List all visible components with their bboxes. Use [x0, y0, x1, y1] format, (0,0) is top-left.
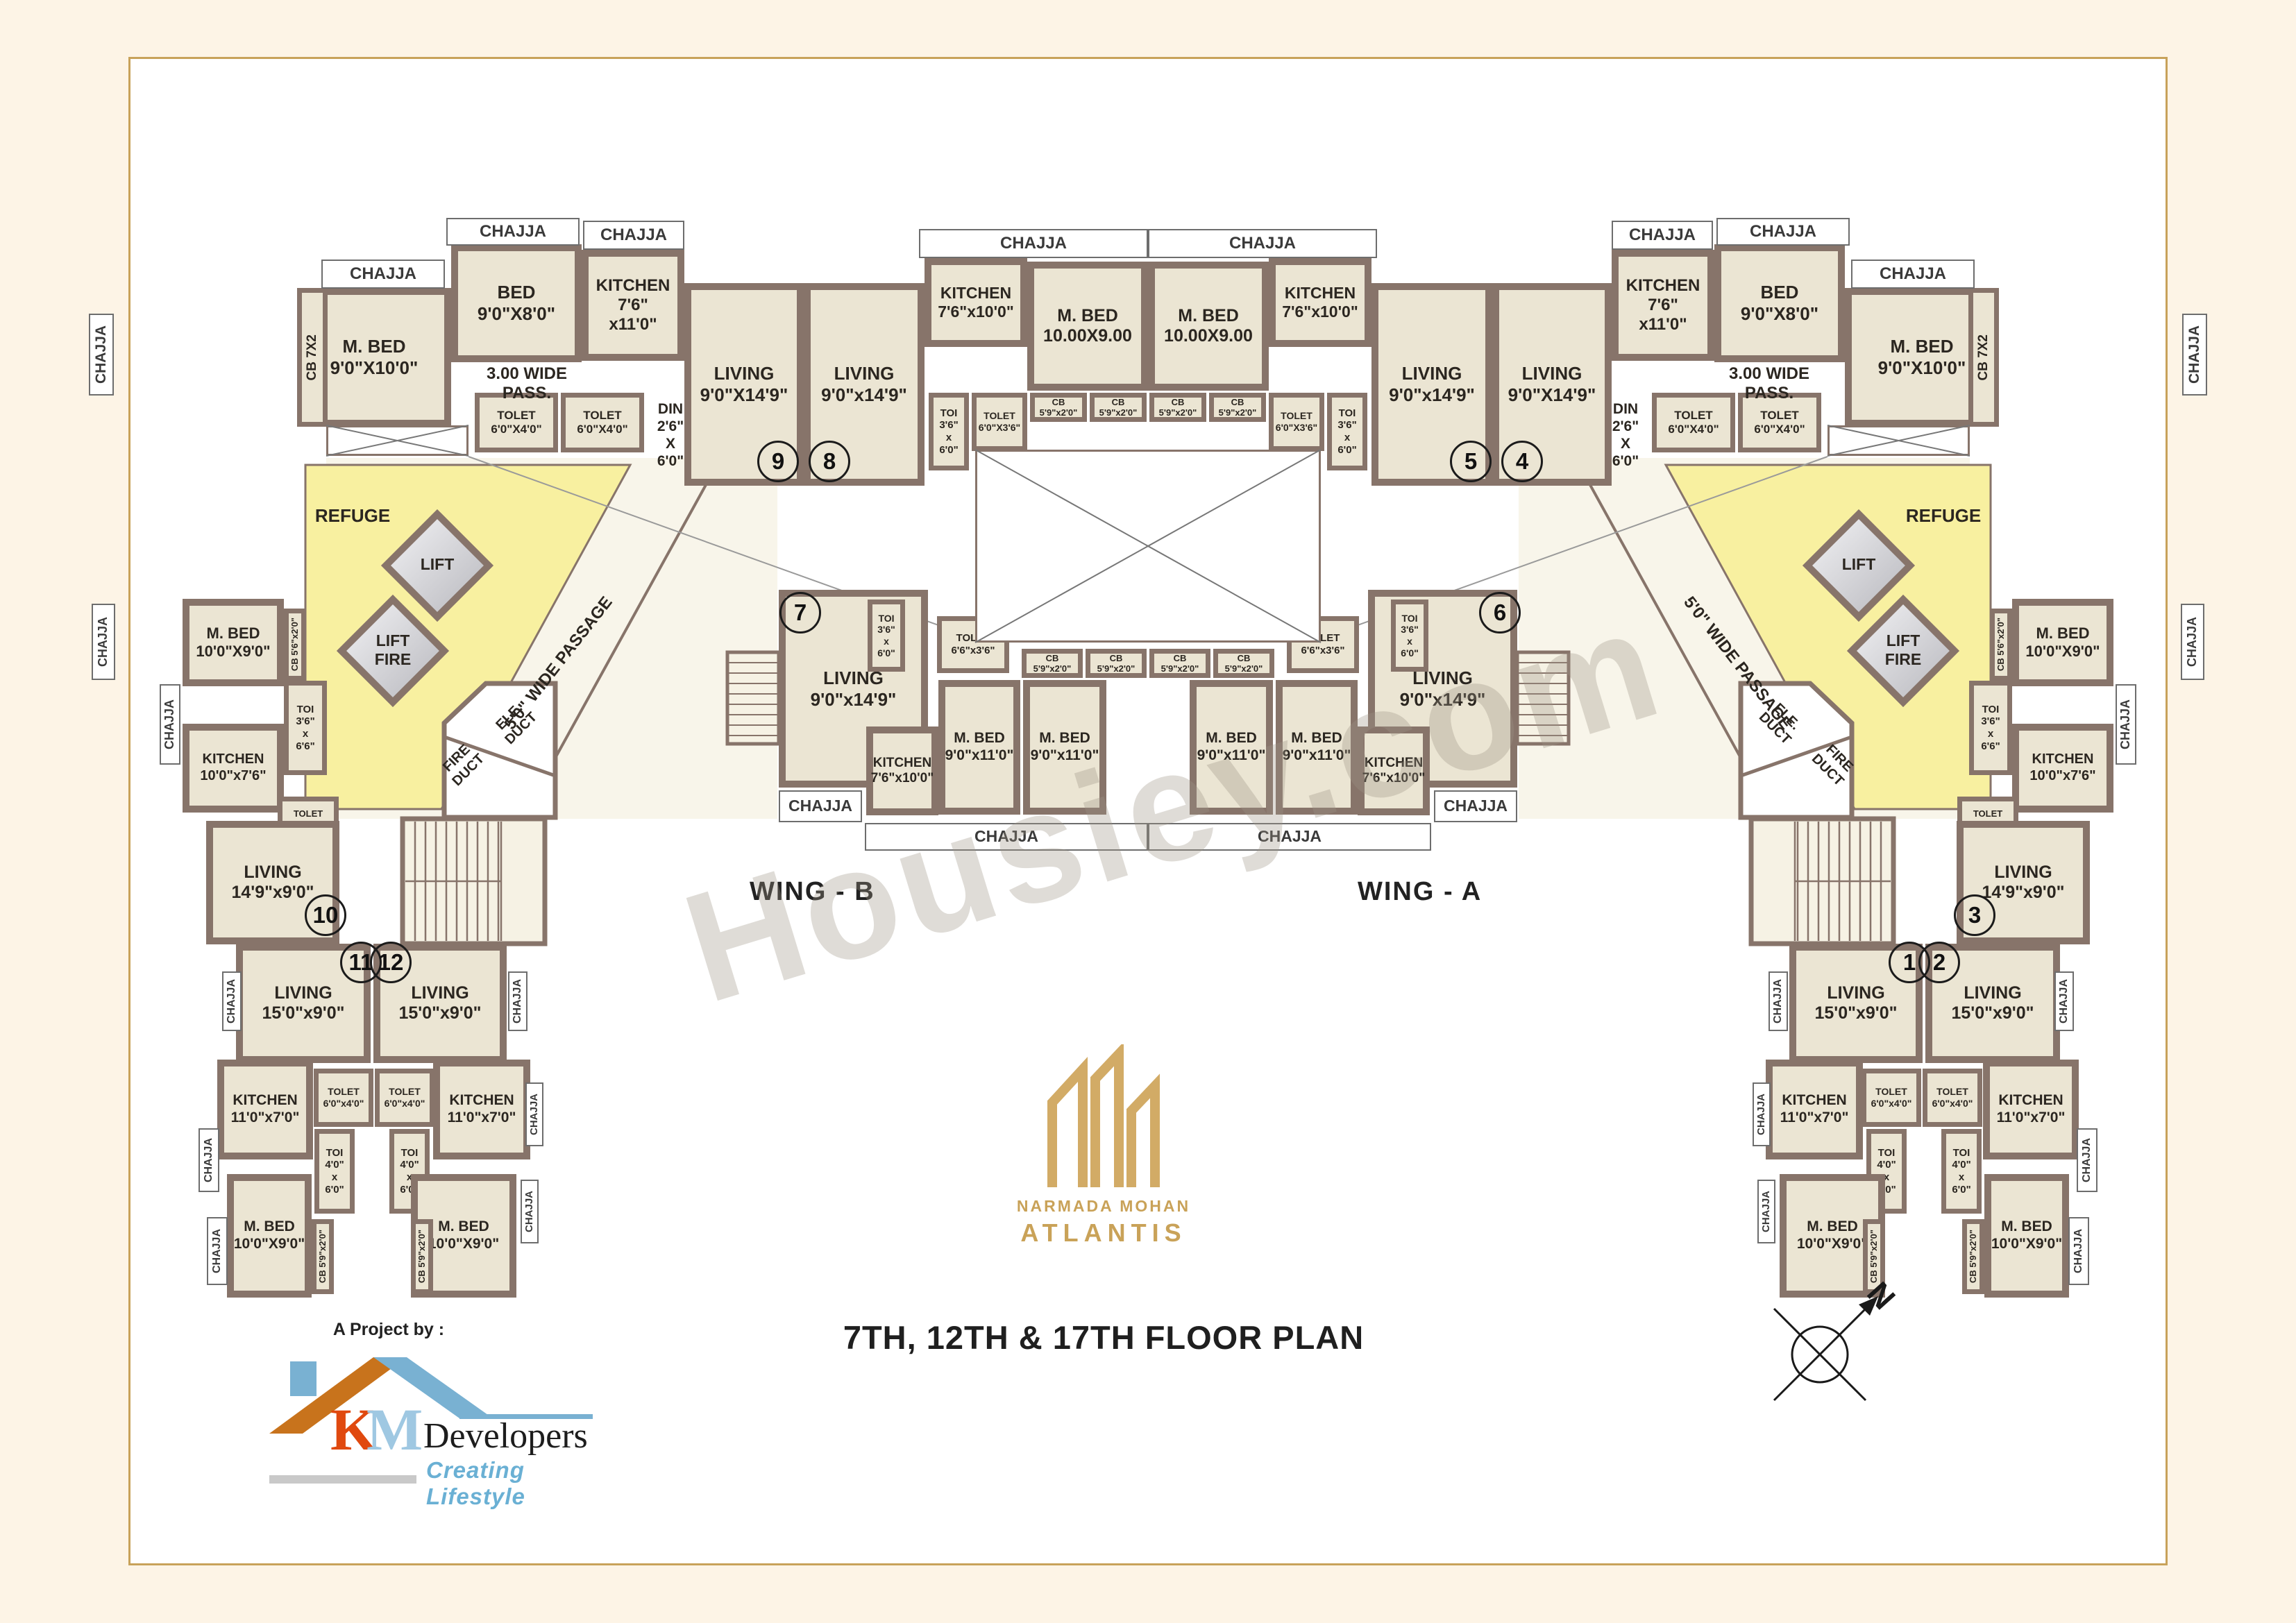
lift-label: LIFT: [411, 554, 464, 576]
unit-number-1: 1: [1889, 942, 1930, 983]
unit-number-5: 5: [1450, 441, 1492, 482]
plan-title: 7TH, 12TH & 17TH FLOOR PLAN: [812, 1318, 1395, 1357]
lift-fire-label: LIFTFIRE: [358, 629, 428, 672]
unit-number-4: 4: [1501, 441, 1543, 482]
north-arrow: [1774, 1296, 1878, 1400]
brand-subname: ATLANTIS: [999, 1218, 1208, 1248]
din-text: DIN2'6"X6'0": [650, 393, 691, 479]
stair-flight-right: [1517, 652, 1569, 744]
project-by-label: A Project by :: [312, 1320, 465, 1340]
lift-label-mirror: LIFT: [1832, 554, 1885, 576]
staircase-wing-b: [403, 819, 545, 944]
unit-number-12: 12: [370, 942, 412, 983]
void-x-lines: [326, 425, 1970, 643]
pass-text: 3.00 WIDE PASS.: [461, 373, 593, 394]
wing-b-label: WING - B: [750, 877, 875, 907]
brand-name: NARMADA MOHAN: [999, 1197, 1208, 1216]
din-text-mirror: DIN2'6"X6'0": [1605, 393, 1646, 479]
unit-number-9: 9: [757, 441, 799, 482]
unit-number-10: 10: [305, 894, 346, 936]
unit-number-7: 7: [779, 592, 821, 634]
refuge-label-mirror: REFUGE: [1895, 504, 1992, 527]
unit-number-3: 3: [1954, 894, 1995, 936]
km-letter-m: M: [366, 1395, 423, 1464]
lift-fire-label-mirror: LIFTFIRE: [1868, 629, 1938, 672]
km-developers-text: K M Developers Creating Lifestyle: [269, 1352, 616, 1497]
stair-flight-left: [727, 652, 779, 744]
wing-a-label: WING - A: [1358, 877, 1482, 907]
km-tagline: Creating Lifestyle: [426, 1457, 616, 1510]
pass-text-mirror: 3.00 WIDE PASS.: [1703, 373, 1835, 394]
building-logo-icon: [1041, 1044, 1166, 1190]
km-name: Developers: [423, 1416, 588, 1456]
staircase-wing-a: [1751, 819, 1893, 944]
unit-number-6: 6: [1479, 592, 1521, 634]
refuge-label: REFUGE: [304, 504, 401, 527]
lift-diamonds: [341, 514, 1955, 702]
unit-number-8: 8: [809, 441, 850, 482]
project-logo: NARMADA MOHAN ATLANTIS: [999, 1044, 1208, 1248]
